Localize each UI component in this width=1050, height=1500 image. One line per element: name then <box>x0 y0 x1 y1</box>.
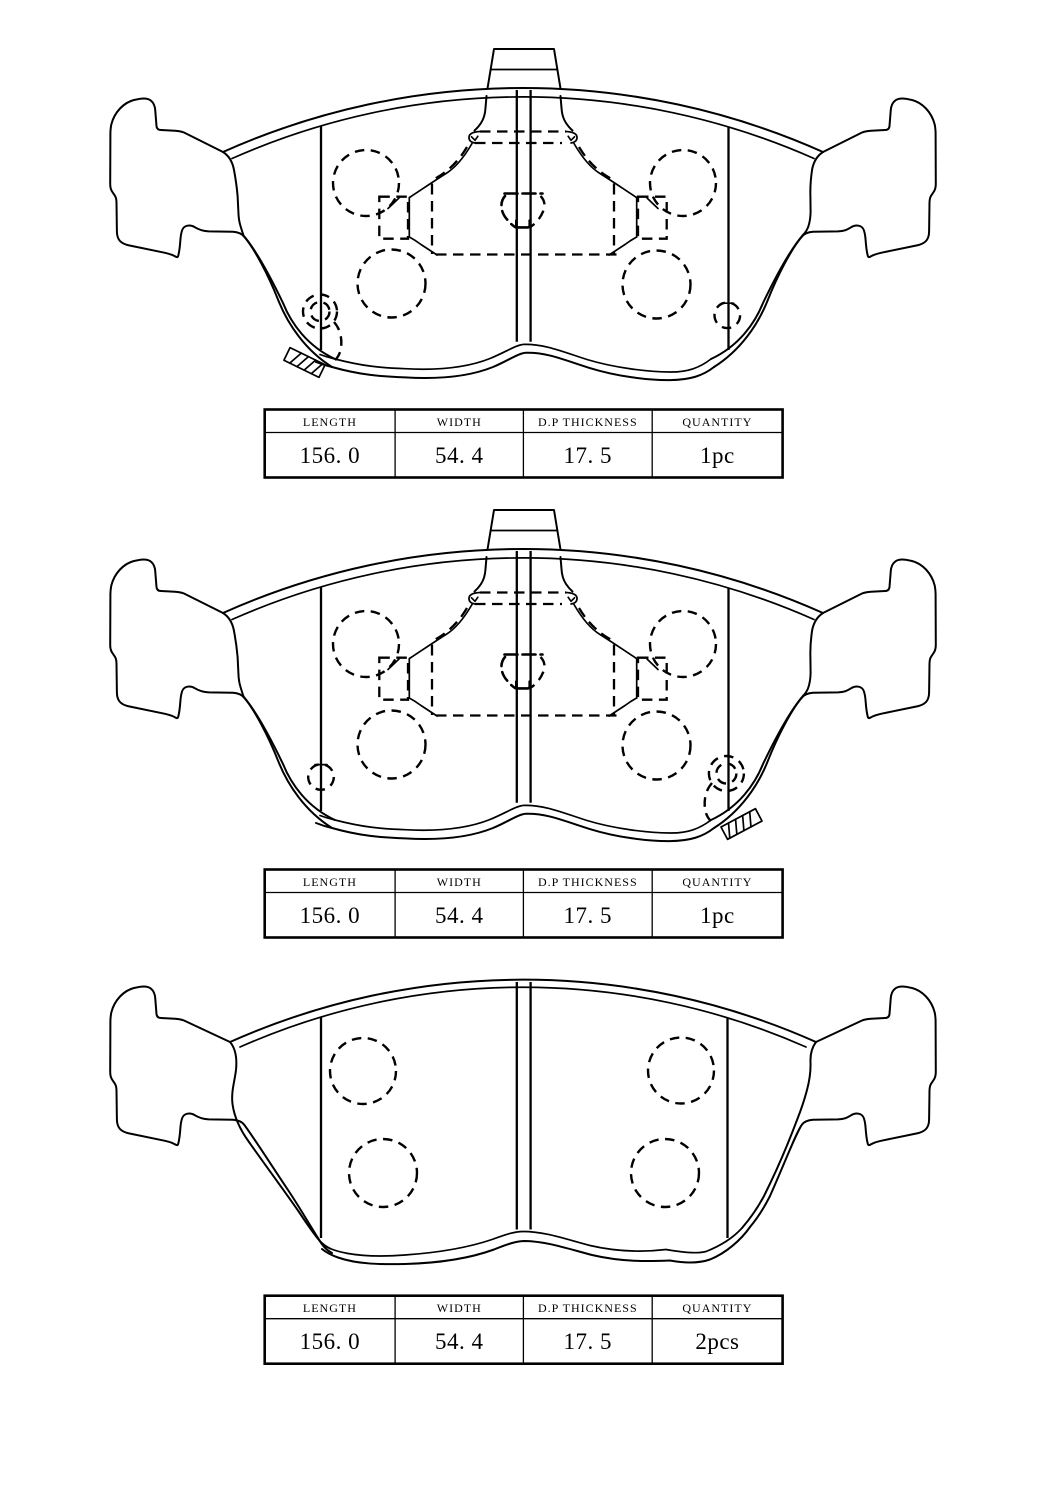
svg-text:156. 0: 156. 0 <box>300 903 361 928</box>
svg-text:17. 5: 17. 5 <box>564 1329 613 1354</box>
svg-text:D.P THICKNESS: D.P THICKNESS <box>538 875 638 889</box>
svg-text:QUANTITY: QUANTITY <box>682 875 752 889</box>
svg-text:WIDTH: WIDTH <box>437 415 482 429</box>
svg-text:54. 4: 54. 4 <box>435 903 484 928</box>
svg-text:WIDTH: WIDTH <box>437 1301 482 1315</box>
svg-text:LENGTH: LENGTH <box>303 415 357 429</box>
svg-text:54. 4: 54. 4 <box>435 443 484 468</box>
svg-text:54. 4: 54. 4 <box>435 1329 484 1354</box>
svg-text:2pcs: 2pcs <box>695 1329 739 1354</box>
svg-text:156. 0: 156. 0 <box>300 443 361 468</box>
svg-text:156. 0: 156. 0 <box>300 1329 361 1354</box>
svg-text:QUANTITY: QUANTITY <box>682 1301 752 1315</box>
svg-text:1pc: 1pc <box>700 443 735 468</box>
svg-text:LENGTH: LENGTH <box>303 1301 357 1315</box>
svg-text:17. 5: 17. 5 <box>564 443 613 468</box>
svg-text:1pc: 1pc <box>700 903 735 928</box>
svg-text:LENGTH: LENGTH <box>303 875 357 889</box>
svg-text:17. 5: 17. 5 <box>564 903 613 928</box>
svg-text:WIDTH: WIDTH <box>437 875 482 889</box>
svg-text:QUANTITY: QUANTITY <box>682 415 752 429</box>
svg-text:D.P THICKNESS: D.P THICKNESS <box>538 1301 638 1315</box>
svg-text:D.P THICKNESS: D.P THICKNESS <box>538 415 638 429</box>
